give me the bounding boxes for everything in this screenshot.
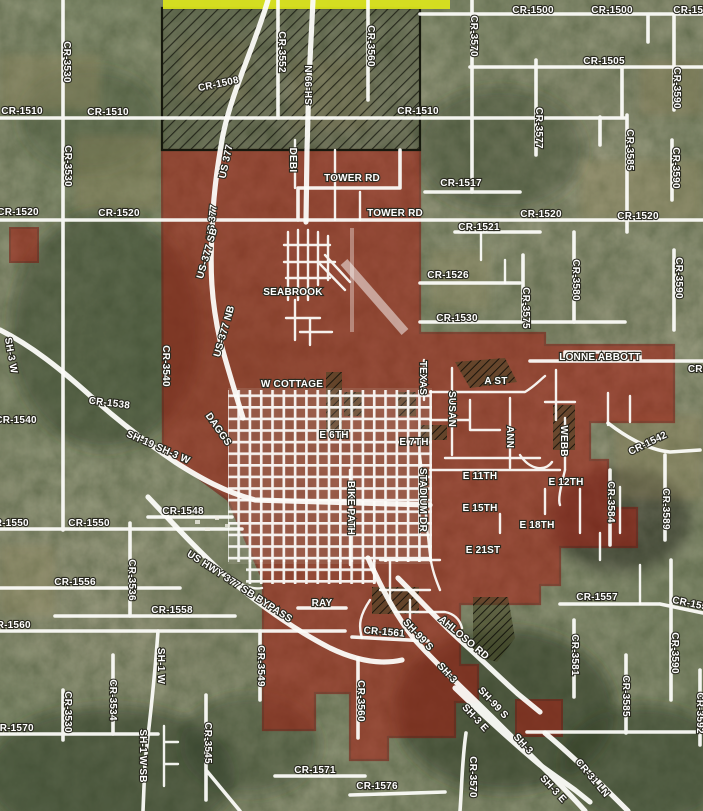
- road-label-cr-1540: CR-1540: [0, 415, 37, 426]
- road-label-cr-1550: CR-1550: [0, 518, 29, 529]
- road-label-sh-1-w-sb: SH-1 W SB: [137, 729, 148, 782]
- road-label-tower-rd: TOWER RD: [324, 173, 380, 184]
- road-label-cr-1500: CR-1500: [591, 5, 633, 16]
- road-label-lonne-abbott: LONNE ABBOTT: [559, 352, 640, 363]
- road-label-cr-1500: CR-1500: [512, 5, 554, 16]
- road-label-webb: WEBB: [558, 425, 569, 456]
- road-label-cr-1521: CR-1521: [458, 222, 500, 233]
- road-label-e-18th: E 18TH: [519, 520, 554, 531]
- road-label-e-7th: E 7TH: [399, 437, 428, 448]
- satellite-map: CR-1500CR-1500CR-1500CR-1505CR-1510CR-15…: [0, 0, 703, 811]
- road-label-cr-3545: CR-3545: [202, 722, 213, 764]
- road-label-e-12th: E 12TH: [548, 477, 583, 488]
- road-label-cr-1560: CR-1560: [0, 620, 31, 631]
- road-label-cr-1510: CR-1510: [397, 106, 439, 117]
- north-hatch-zone: [162, 8, 420, 150]
- road-label-cr-3584: CR-3584: [605, 481, 616, 523]
- road-label-cr-3536: CR-3536: [126, 559, 137, 601]
- road-label-cr-1505: CR-1505: [583, 56, 625, 67]
- road-label-cr-1510: CR-1510: [87, 107, 129, 118]
- road-label-cr-1558: CR-1558: [151, 605, 193, 616]
- road-label-cr-3589: CR-3589: [660, 488, 671, 530]
- road-label-a-st: A ST: [484, 376, 507, 387]
- road-label-cr-1500: CR-1500: [673, 5, 703, 16]
- road-label-cr-3560: CR-3560: [365, 25, 376, 67]
- road-label-cr-3570: CR-3570: [467, 756, 478, 798]
- map-viewport[interactable]: CR-1500CR-1500CR-1500CR-1505CR-1510CR-15…: [0, 0, 703, 811]
- road-label-debi: DEBI: [287, 148, 298, 173]
- road-label-cr-1557: CR-1557: [576, 592, 618, 603]
- road-label-cr-3570: CR-3570: [468, 15, 479, 57]
- road-label-cr-1576: CR-1576: [356, 781, 398, 792]
- road-label-bike-path: BIKE PATH: [345, 481, 356, 535]
- road-label-w-cottage: W COTTAGE: [261, 379, 323, 390]
- road-label-cr-3590: CR-3590: [671, 67, 682, 109]
- road-label-cr-3530: CR-3530: [61, 41, 72, 83]
- road-label-cr-3585: CR-3585: [620, 675, 631, 717]
- road-label-ann: ANN: [504, 426, 515, 448]
- road-label-susan: SUSAN: [446, 391, 457, 427]
- road-label-cr-: CR-: [688, 364, 703, 375]
- road-label-cr-3552: CR-3552: [276, 31, 287, 73]
- road-label-cr-1530: CR-1530: [436, 313, 478, 324]
- road-label-cr-3577: CR-3577: [533, 107, 544, 149]
- road-label-cr-1517: CR-1517: [440, 178, 482, 189]
- road-label-seabrook: SEABROOK: [263, 287, 323, 298]
- road-label-cr-1526: CR-1526: [427, 270, 469, 281]
- road-label-stadium-dr: STADIUM DR: [417, 468, 428, 533]
- road-label-cr-3592: CR-3592: [694, 692, 703, 734]
- road-label-ray: RAY: [312, 598, 333, 609]
- road-label-cr-3530: CR-3530: [62, 145, 73, 187]
- road-label-e-11th: E 11TH: [463, 471, 498, 482]
- road-label-cr-3534: CR-3534: [107, 679, 118, 721]
- road-label-cr-1556: CR-1556: [54, 577, 96, 588]
- road-label-cr-1550: CR-1550: [68, 518, 110, 529]
- road-label-e-21st: E 21ST: [466, 545, 501, 556]
- road-label-cr-3585: CR-3585: [624, 129, 635, 171]
- road-label-cr-1520: CR-1520: [520, 209, 562, 220]
- road-label-cr-3575: CR-3575: [520, 287, 531, 329]
- road-label-cr-1548: CR-1548: [162, 506, 204, 517]
- road-label-cr-1520: CR-1520: [0, 207, 39, 218]
- road-label-cr-1571: CR-1571: [294, 765, 336, 776]
- road-label-cr-1520: CR-1520: [617, 211, 659, 222]
- road-label-cr-3530: CR-3530: [62, 691, 73, 733]
- yellow-zone: [163, 0, 450, 9]
- road-label-texas: TEXAS: [417, 361, 428, 395]
- road-label-cr-3581: CR-3581: [569, 634, 580, 676]
- road-label-cr-1520: CR-1520: [98, 208, 140, 219]
- road-label-e-15th: E 15TH: [462, 503, 497, 514]
- road-label-cr-1570: CR-1570: [0, 723, 34, 734]
- road-label-e-6th: E 6TH: [319, 430, 348, 441]
- road-label-cr-1510: CR-1510: [1, 106, 43, 117]
- road-label-sh-1-w: SH-1 W: [155, 648, 166, 685]
- downtown-grid: [228, 388, 432, 584]
- road-label-sh-99-n: SH-99 N: [304, 65, 315, 105]
- road-label-cr-3549: CR-3549: [255, 645, 266, 687]
- road-label-cr-3590: CR-3590: [669, 632, 680, 674]
- road-label-cr-3580: CR-3580: [570, 259, 581, 301]
- road-label-cr-3590: CR-3590: [670, 147, 681, 189]
- road-label-cr-3590: CR-3590: [673, 257, 684, 299]
- road-label-cr-3560: CR-3560: [355, 680, 366, 722]
- road-label-tower-rd: TOWER RD: [367, 208, 423, 219]
- road-label-cr-3540: CR-3540: [160, 345, 171, 387]
